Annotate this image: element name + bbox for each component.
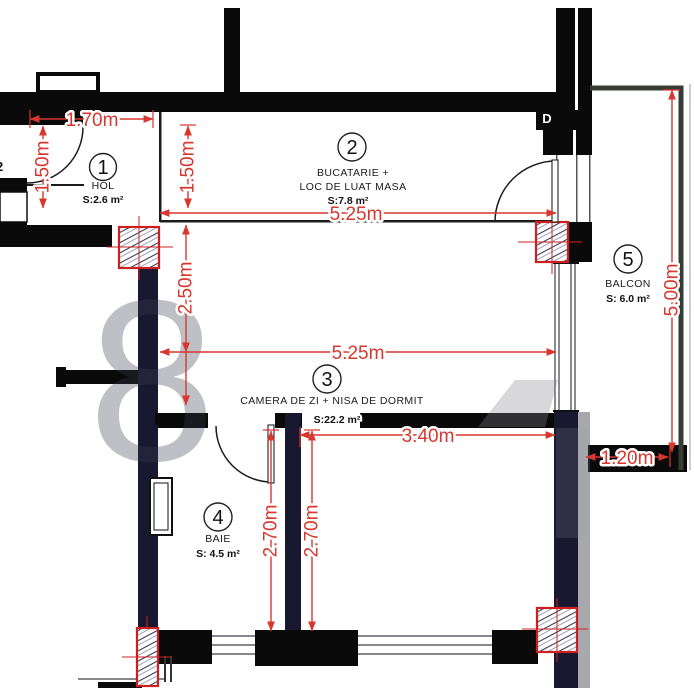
svg-text:1.50m: 1.50m	[33, 141, 54, 194]
svg-text:2.70m: 2.70m	[302, 505, 323, 558]
wall-right-gap	[575, 8, 578, 110]
svg-text:5.25m: 5.25m	[330, 204, 383, 225]
room-name-4: BAIE	[205, 533, 231, 545]
wall-right-seg1-gap	[573, 130, 576, 155]
room-area-4: S: 4.5 m²	[196, 548, 240, 560]
room-number-2: 2	[346, 137, 357, 159]
room-name-3: CAMERA DE ZI + NISA DE DORMIT	[240, 395, 424, 407]
bath-door	[216, 425, 274, 483]
wall-bath-right	[285, 413, 301, 630]
room-number-1: 1	[97, 157, 108, 179]
svg-text:1.20m: 1.20m	[601, 448, 654, 469]
room-name-1: HOL	[92, 180, 115, 192]
svg-text:3.40m: 3.40m	[402, 426, 455, 447]
room-area-5: S: 6.0 m²	[606, 293, 650, 305]
dim-hall-depth: 1.50m	[33, 126, 54, 208]
dim-kitchen-depth: 1.50m	[178, 125, 199, 208]
window-bottom-b	[358, 632, 492, 658]
dim-bath-depth: 2.70m	[261, 430, 282, 631]
adjacent-unit-label: 2	[0, 159, 3, 174]
dim-niche-depth: 2.70m	[302, 430, 323, 631]
room-area-3: S:22.2 m²	[314, 414, 361, 426]
utility-box-label: D	[542, 111, 551, 126]
room-area-2: S:7.8 m²	[328, 195, 369, 207]
room-number-5: 5	[622, 249, 633, 271]
wall-top-stub	[224, 8, 240, 92]
window-right	[553, 262, 579, 412]
wall-below-hall	[0, 225, 112, 247]
floorplan-drawing: D	[0, 0, 694, 688]
room-label-bath: 4 BAIE S: 4.5 m²	[196, 503, 240, 560]
window-bottom-a	[212, 632, 255, 658]
svg-text:1.50m: 1.50m	[178, 141, 199, 194]
room-area-1: S:2.6 m²	[83, 194, 124, 206]
watermark-glyph: 8	[88, 252, 216, 509]
room-number-3: 3	[321, 369, 332, 391]
dim-living-width: 5.25m	[160, 343, 556, 364]
room-name-2b: LOC DE LUAT MASA	[300, 181, 407, 193]
room-name-2a: BUCATARIE +	[317, 167, 389, 179]
svg-text:2.50m: 2.50m	[176, 262, 197, 315]
wall-bottom	[158, 630, 538, 666]
room-label-hol: 1 HOL S:2.6 m²	[83, 154, 124, 207]
partition-hall-kitchen	[159, 112, 162, 222]
wall-left-niche	[0, 192, 27, 222]
dim-niche-width: 3.40m	[300, 426, 555, 447]
wall-right-seg1	[543, 130, 592, 155]
svg-text:1.70m: 1.70m	[66, 110, 119, 131]
room-number-4: 4	[212, 507, 223, 529]
wall-left-a	[0, 112, 27, 125]
room-label-balcony: 5 BALCON S: 6.0 m²	[605, 245, 651, 305]
svg-text:5.00m: 5.00m	[662, 264, 683, 317]
watermark-blob	[478, 380, 558, 427]
balcony-door-jamb2	[576, 155, 578, 222]
floorplan-canvas: D	[0, 0, 694, 688]
watermark-blob2	[556, 428, 590, 538]
room-name-5: BALCON	[605, 278, 651, 290]
balcony-door-jamb3	[589, 155, 591, 222]
wall-top	[0, 92, 560, 112]
wall-top-left-protrusion	[38, 74, 98, 92]
wall-left-b	[0, 178, 27, 192]
svg-text:5.25m: 5.25m	[332, 343, 385, 364]
room-label-kitchen: 2 BUCATARIE + LOC DE LUAT MASA S:7.8 m²	[300, 133, 407, 207]
svg-text:2.70m: 2.70m	[261, 505, 282, 558]
